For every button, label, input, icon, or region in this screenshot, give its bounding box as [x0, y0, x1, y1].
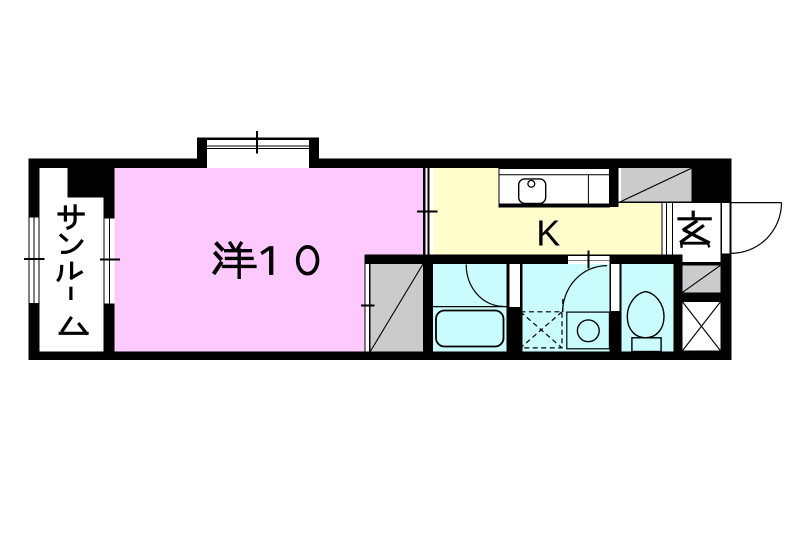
svg-text:K: K	[536, 213, 560, 254]
